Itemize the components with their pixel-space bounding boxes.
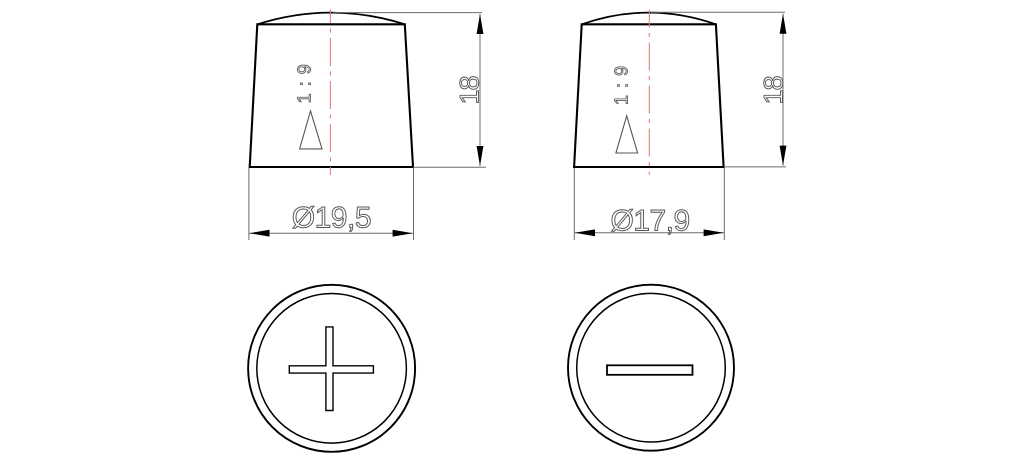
svg-text:18: 18 (759, 76, 789, 104)
svg-text:Ø17,9: Ø17,9 (610, 205, 689, 238)
svg-text:18: 18 (455, 76, 485, 104)
svg-text:1:9: 1:9 (612, 59, 632, 105)
svg-text:Ø19,5: Ø19,5 (292, 202, 371, 235)
svg-text:1:9: 1:9 (295, 57, 315, 103)
